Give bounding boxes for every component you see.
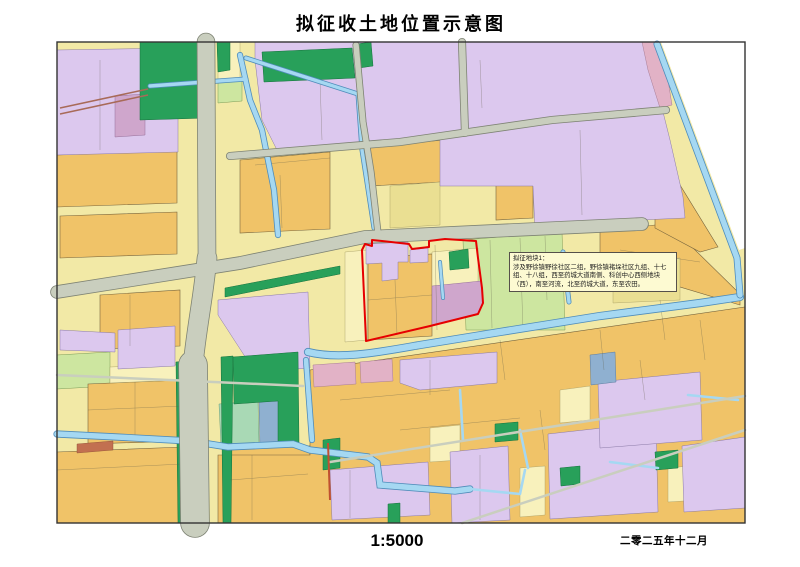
map-scale-label: 1:5000 — [337, 531, 457, 551]
annotation-body: 涉及野徐镇野徐社区二组，野徐镇褚垛社区九组、十七组、十八组，西至药城大道南侧、科… — [513, 264, 673, 290]
map-svg — [0, 0, 800, 567]
annotation-callout: 拟征地块1： 涉及野徐镇野徐社区二组，野徐镇褚垛社区九组、十七组、十八组，西至药… — [509, 252, 677, 292]
page: 拟征收土地位置示意图 — [0, 0, 800, 567]
map-date-label: 二零二五年十二月 — [620, 533, 708, 548]
map-canvas — [0, 0, 800, 567]
annotation-heading: 拟征地块1： — [513, 255, 673, 264]
